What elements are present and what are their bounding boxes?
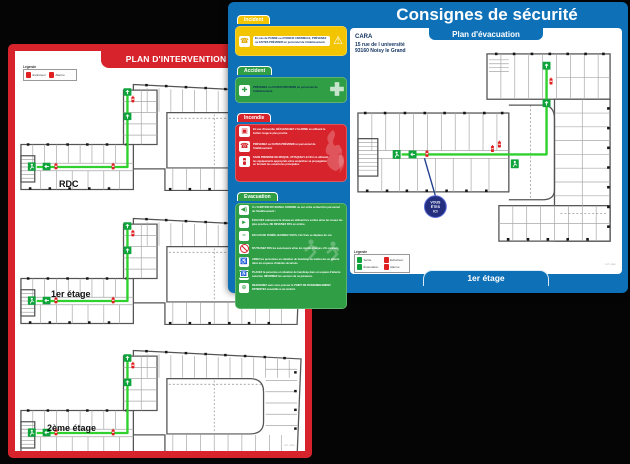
warning-triangle-icon: ⚠ <box>333 36 343 47</box>
evacuation-plan-area: Plan d'évacuation CARA 15 rue de l unive… <box>350 28 622 274</box>
accident-tab: Accident <box>237 66 272 75</box>
assembly-point-icon: ⊕ <box>239 283 249 293</box>
incident-text: En cas de PANNE ou d'ODEUR ANORMALE, PRÉ… <box>253 36 330 46</box>
legend-item: Sortie <box>357 257 381 263</box>
evacuation-legend: Légende Sortie Extincteur Évacuation <box>354 250 410 273</box>
route-icon <box>357 264 362 270</box>
extinguisher-icon <box>384 257 389 263</box>
reference-text: réf. plan <box>605 262 616 266</box>
smoke-crouch-icon: ≈ <box>239 231 249 241</box>
refuge-area-icon: ♿ <box>239 270 249 280</box>
legend-item: Alarme <box>384 264 408 270</box>
alarm-button-icon: ▣ <box>239 126 250 137</box>
evacuation-tab: Evacuation <box>237 192 278 201</box>
incident-tab: Incident <box>237 15 270 24</box>
legend-item: Extincteur <box>384 257 408 263</box>
svg-text:ÊTES: ÊTES <box>431 204 441 209</box>
address-line: CARA <box>355 34 406 42</box>
extinguisher-icon <box>239 156 250 167</box>
evacuation-row: ► ÉVACUEZ calmement le niveau en utilisa… <box>235 216 347 229</box>
legend-item: Évacuation <box>357 264 381 270</box>
phone-icon: ☎ <box>239 36 250 47</box>
incendie-row: ☎ PRÉVENEZ ou FAITES PRÉVENIR un personn… <box>235 139 347 154</box>
floorplan-evacuation: VOUS ÊTES ICI <box>352 48 620 250</box>
instructions-panel: Incident ☎ En cas de PANNE ou d'ODEUR AN… <box>235 8 347 288</box>
alarm-sound-icon: ◀) <box>239 205 249 215</box>
evacuation-row: ⊕ REJOIGNEZ sans vous presser le POINT D… <box>235 281 347 294</box>
assist-disabled-icon: ♿ <box>239 257 249 267</box>
floorplan-2eme <box>17 343 303 451</box>
plan-subtitle-tab: Plan d'évacuation <box>428 28 544 41</box>
reference-text: réf. plan <box>284 443 295 447</box>
floor-label-2eme: 2ème étage <box>47 423 96 433</box>
floor-label-rdc: RDC <box>59 179 79 189</box>
evacuation-row: ♿ AIDEZ les personnes en situation de ha… <box>235 255 347 268</box>
exit-icon <box>357 257 362 263</box>
evacuation-poster: Consignes de sécurité Incident ☎ En cas … <box>228 2 628 293</box>
incident-row: ☎ En cas de PANNE ou d'ODEUR ANORMALE, P… <box>235 26 347 56</box>
accident-section: Accident ✚ PRÉVENEZ ou FAITES PRÉVENIR u… <box>235 59 347 103</box>
evacuation-section: Evacuation ◀) À L'AUDITION DU SIGNAL SON… <box>235 185 347 309</box>
evacuation-row: ≈ EN CAS DE FUMÉE, BAISSEZ-VOUS, l'air f… <box>235 229 347 242</box>
incendie-tab: Incendie <box>237 113 271 122</box>
you-are-here-badge: VOUS ÊTES ICI <box>424 196 446 218</box>
poster-title: Consignes de sécurité <box>352 5 622 28</box>
accident-row: ✚ PRÉVENEZ ou FAITES PRÉVENIR un personn… <box>235 77 347 103</box>
evacuation-row: N'UTILISEZ PAS les ascenseurs et/ou les … <box>235 242 347 255</box>
phone-icon: ☎ <box>239 141 250 152</box>
alarm-icon <box>384 264 389 270</box>
evacuation-row: ♿ PLACEZ la personne en situation de han… <box>235 268 347 281</box>
accident-text: PRÉVENEZ ou FAITES PRÉVENIR un personnel… <box>253 86 343 93</box>
floor-tab: 1er étage <box>423 270 549 286</box>
svg-text:ICI: ICI <box>433 210 438 214</box>
no-elevator-icon <box>239 244 249 254</box>
evacuation-row: ◀) À L'AUDITION DU SIGNAL SONORE ou sur … <box>235 203 347 216</box>
incendie-section: Incendie ▣ En cas d'incendie, DÉCLENCHEZ… <box>235 106 347 182</box>
floor-label-1er: 1er étage <box>51 289 91 299</box>
intervention-title: PLAN D'INTERVENTION <box>126 54 227 64</box>
first-aid-icon: ✚ <box>239 85 250 96</box>
incendie-row: SANS PRENDRE DE RISQUE, ATTAQUEZ LE FEU … <box>235 154 347 169</box>
incendie-row: ▣ En cas d'incendie, DÉCLENCHEZ L'ALARME… <box>235 124 347 139</box>
desktop-background: PLAN D'INTERVENTION Légende Extincteur A… <box>0 0 630 464</box>
evacuate-route-icon: ► <box>239 218 249 228</box>
svg-text:VOUS: VOUS <box>430 201 441 205</box>
incident-section: Incident ☎ En cas de PANNE ou d'ODEUR AN… <box>235 8 347 56</box>
